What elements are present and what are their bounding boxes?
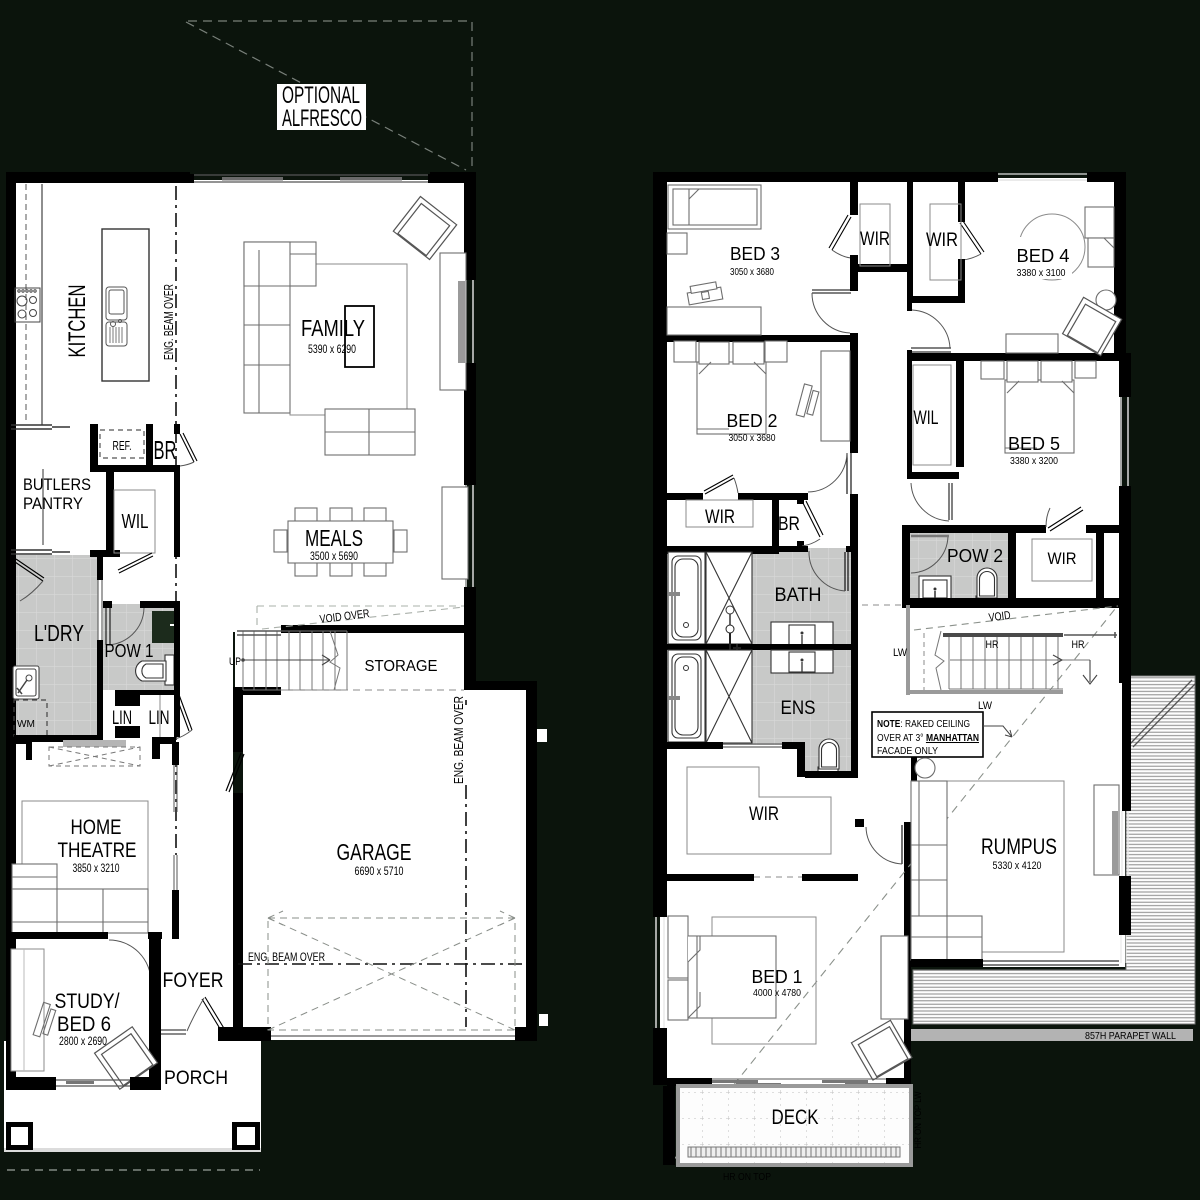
svg-text:3380 x 3100: 3380 x 3100 [1017, 267, 1066, 279]
svg-text:BR: BR [154, 435, 177, 465]
svg-text:WIR: WIR [1048, 549, 1077, 568]
svg-text:ENG. BEAM OVER: ENG. BEAM OVER [162, 284, 176, 360]
svg-text:WIL: WIL [914, 408, 939, 429]
svg-text:PORCH: PORCH [164, 1067, 228, 1089]
svg-text:2800 x 2690: 2800 x 2690 [59, 1036, 107, 1048]
svg-text:THEATRE: THEATRE [58, 838, 137, 862]
svg-text:OVER AT 3° MANHATTAN: OVER AT 3° MANHATTAN [877, 733, 979, 744]
svg-text:WM: WM [17, 719, 35, 730]
svg-text:HR ON TOP LW: HR ON TOP LW [913, 1091, 924, 1148]
svg-text:5330 x 4120: 5330 x 4120 [993, 860, 1042, 872]
svg-text:5390 x 6290: 5390 x 6290 [308, 342, 356, 356]
svg-text:WIL: WIL [122, 511, 149, 533]
svg-text:3380 x 3200: 3380 x 3200 [1010, 455, 1058, 467]
svg-text:FOYER: FOYER [163, 968, 224, 992]
svg-text:BUTLERS: BUTLERS [23, 476, 91, 494]
svg-text:3050 x 3680: 3050 x 3680 [730, 266, 774, 278]
svg-text:BED 1: BED 1 [752, 966, 803, 987]
svg-text:BATH: BATH [775, 585, 822, 606]
svg-text:ALFRESCO: ALFRESCO [282, 105, 362, 132]
svg-text:LIN: LIN [149, 708, 170, 729]
svg-text:POW 2: POW 2 [947, 546, 1003, 566]
svg-text:L'DRY: L'DRY [34, 620, 84, 646]
svg-text:NOTE: RAKED CEILING: NOTE: RAKED CEILING [877, 719, 970, 730]
svg-text:MEALS: MEALS [305, 525, 363, 551]
svg-text:STORAGE: STORAGE [365, 658, 438, 675]
svg-text:BED 6: BED 6 [57, 1012, 111, 1036]
svg-text:POW 1: POW 1 [105, 641, 154, 661]
svg-text:4000 x 4780: 4000 x 4780 [753, 987, 801, 999]
svg-text:WIR: WIR [749, 804, 779, 825]
svg-text:WIR: WIR [705, 507, 735, 528]
svg-text:HOME: HOME [71, 815, 122, 839]
svg-text:BED 2: BED 2 [727, 410, 778, 431]
svg-text:STUDY/: STUDY/ [55, 989, 120, 1013]
svg-text:FAMILY: FAMILY [301, 315, 365, 341]
svg-text:857H PARAPET WALL: 857H PARAPET WALL [1085, 1030, 1176, 1042]
svg-text:BED 5: BED 5 [1008, 433, 1060, 454]
svg-text:UP: UP [229, 656, 241, 668]
svg-text:LW: LW [978, 700, 993, 712]
svg-text:GARAGE: GARAGE [337, 839, 412, 865]
svg-text:KITCHEN: KITCHEN [64, 285, 91, 358]
svg-text:WIR: WIR [860, 229, 890, 250]
svg-text:ENG. BEAM OVER: ENG. BEAM OVER [452, 696, 466, 784]
svg-text:DECK: DECK [772, 1106, 819, 1129]
svg-text:BED 4: BED 4 [1017, 245, 1070, 266]
svg-text:HR ON TOP: HR ON TOP [723, 1172, 771, 1183]
svg-text:HR: HR [1072, 639, 1085, 651]
svg-text:3050 x 3680: 3050 x 3680 [729, 432, 776, 444]
svg-text:WIR: WIR [926, 230, 958, 251]
svg-text:PANTRY: PANTRY [23, 495, 83, 513]
svg-text:REF.: REF. [113, 438, 132, 453]
svg-text:LW: LW [893, 647, 908, 659]
svg-text:ENG. BEAM OVER: ENG. BEAM OVER [248, 950, 325, 964]
svg-text:BED 3: BED 3 [730, 243, 780, 264]
svg-text:3500 x 5690: 3500 x 5690 [310, 549, 358, 563]
svg-text:RUMPUS: RUMPUS [981, 834, 1057, 859]
svg-text:ENS: ENS [781, 698, 816, 719]
svg-text:FACADE ONLY: FACADE ONLY [877, 746, 938, 757]
svg-text:HR: HR [986, 639, 999, 651]
svg-text:BR: BR [778, 514, 800, 535]
svg-text:LIN: LIN [112, 708, 132, 729]
svg-text:3850 x 3210: 3850 x 3210 [73, 863, 120, 875]
svg-text:6690 x 5710: 6690 x 5710 [355, 864, 404, 878]
